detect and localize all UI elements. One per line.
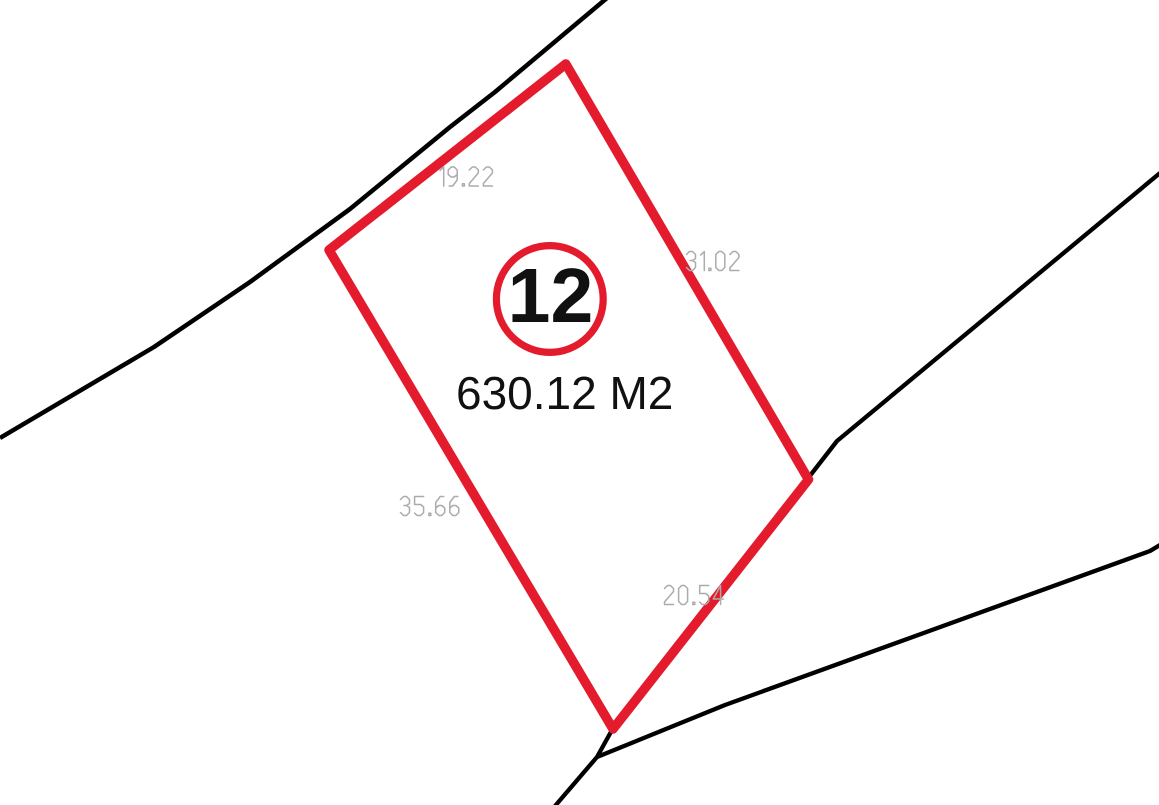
svg-text:12: 12 bbox=[508, 253, 594, 339]
svg-text:630.12 M2: 630.12 M2 bbox=[456, 367, 673, 419]
